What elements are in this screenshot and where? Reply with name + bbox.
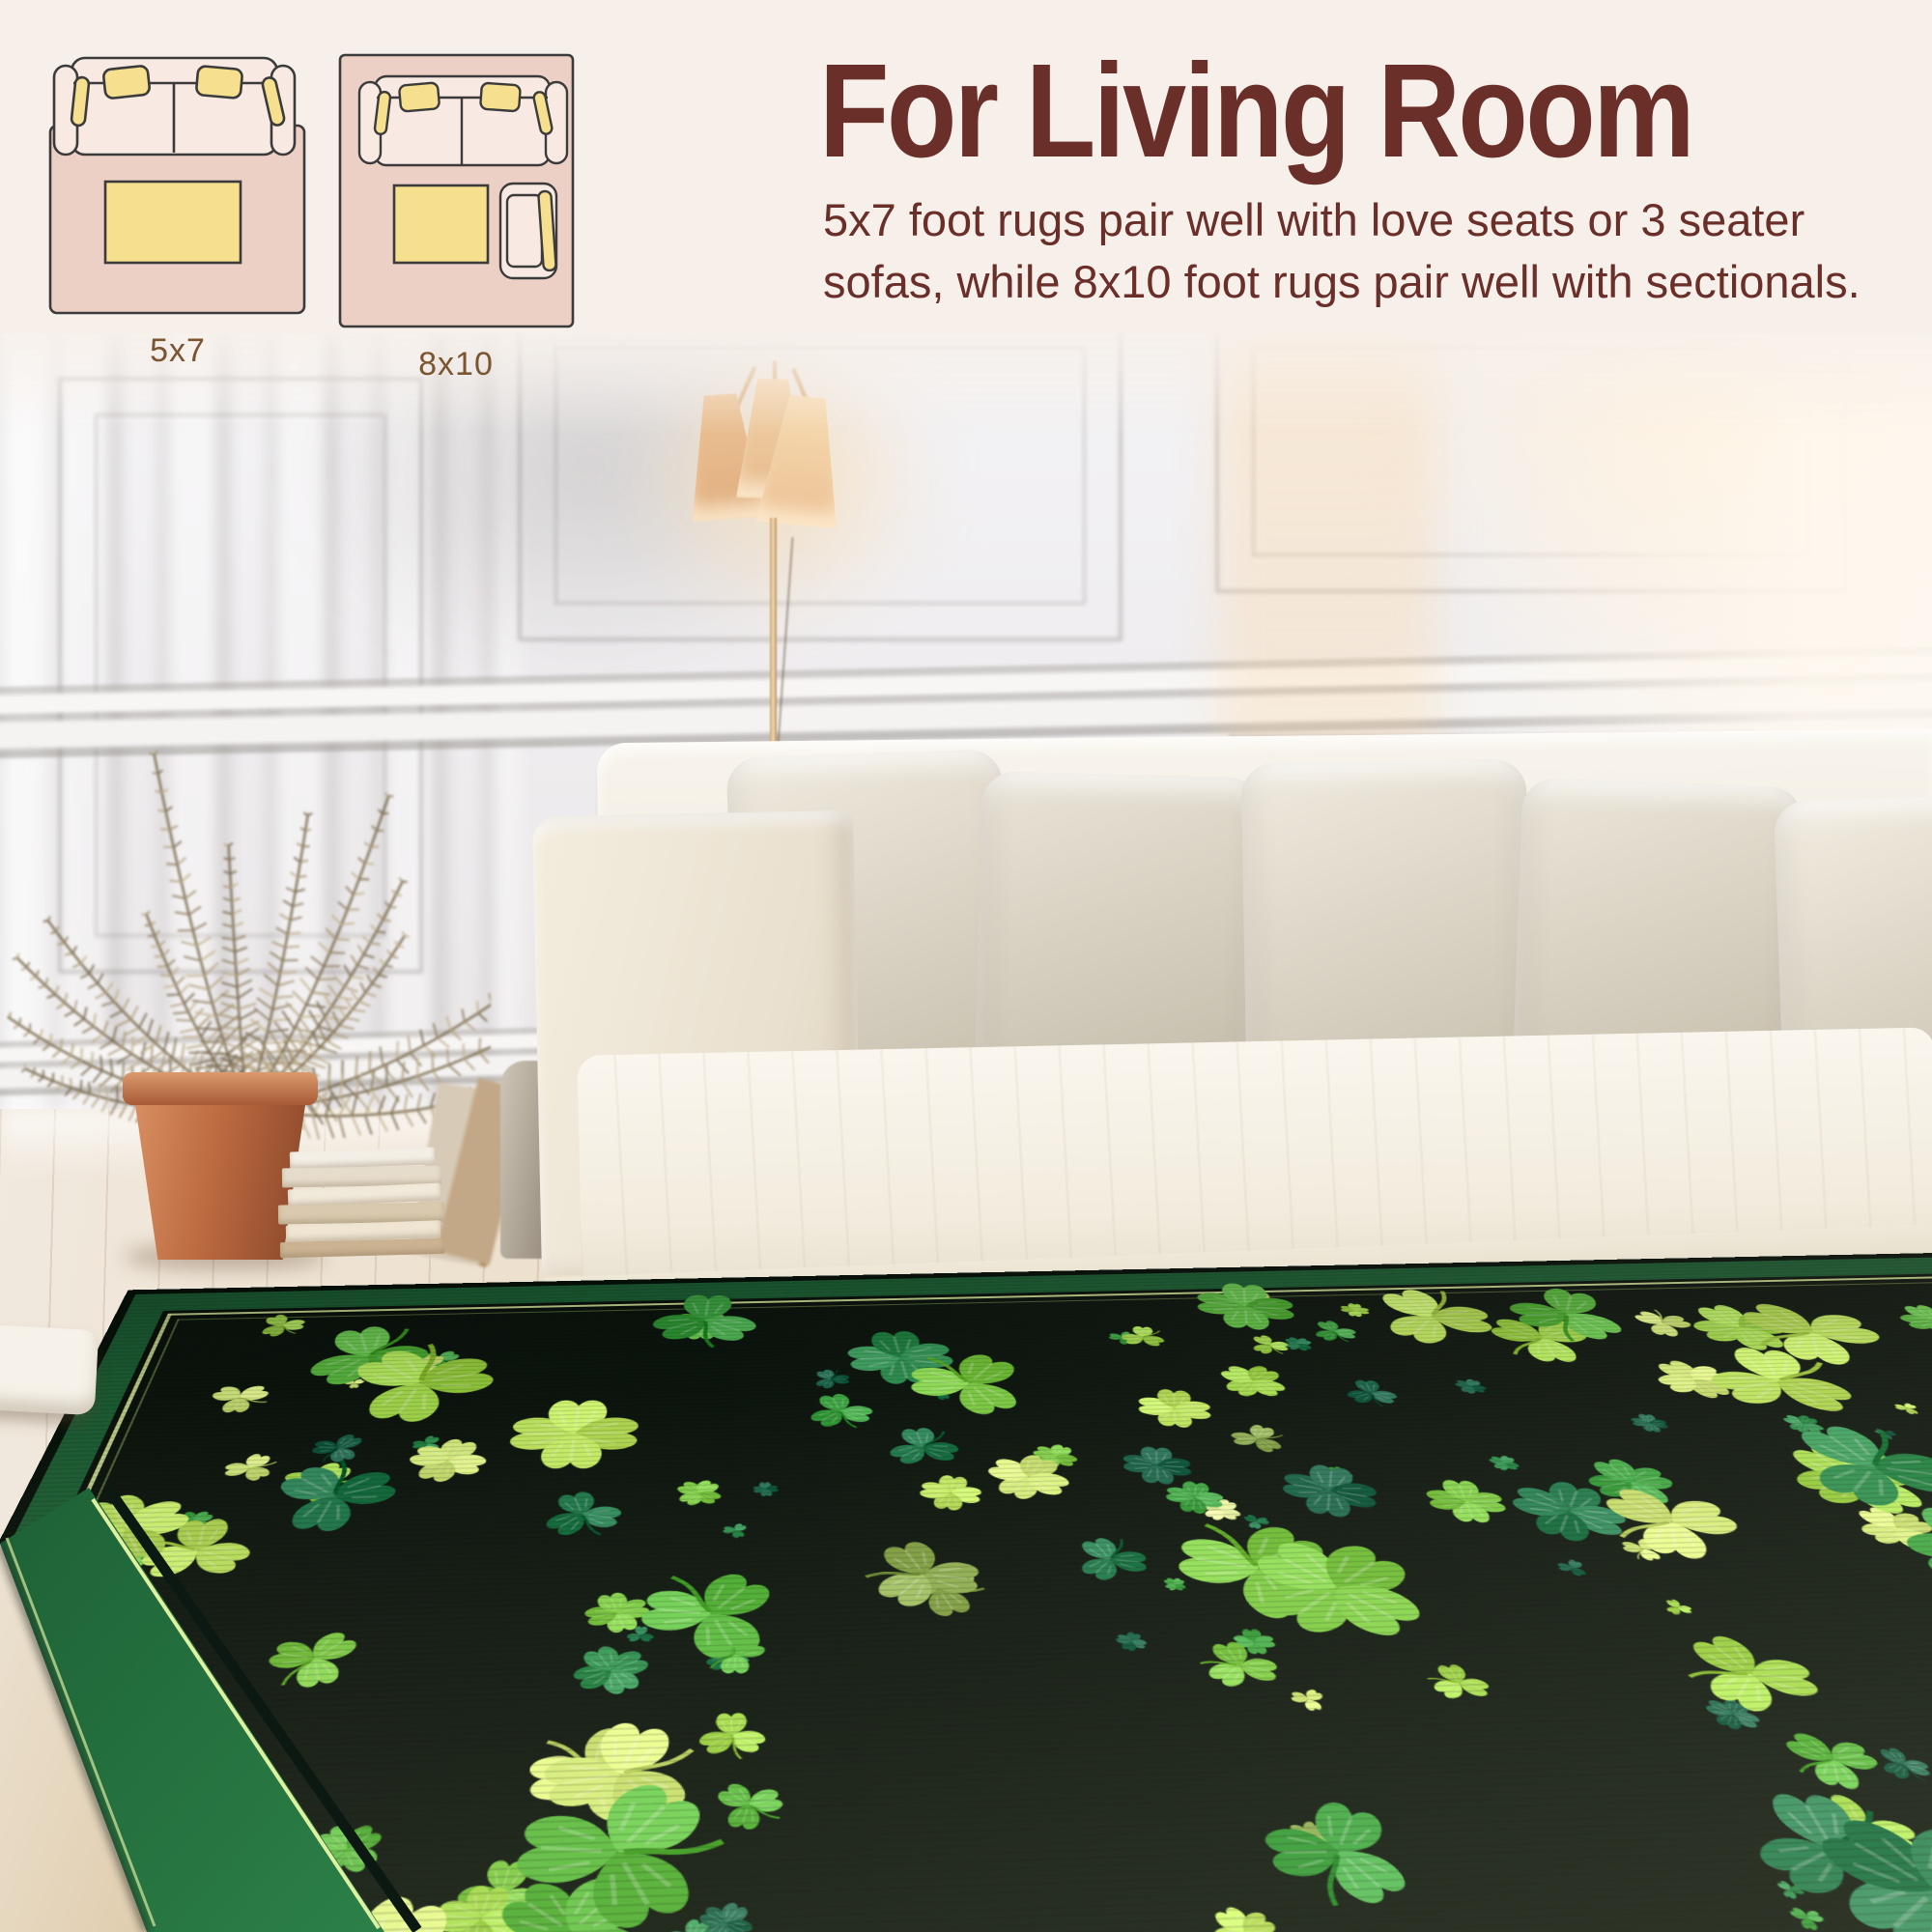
diagram-label-8x10: 8x10 [359,346,553,384]
rug-size-diagram-5x7 [44,56,311,319]
shamrock-rug [0,1225,1932,1932]
terracotta-pot-rim [123,1072,318,1105]
armchair-corner [0,1324,99,1415]
sofa-top-icon [359,76,567,165]
band-fade [0,319,1932,435]
product-infographic: 5x7 8x10 For Living Room 5x7 foot rugs p… [0,0,1932,1932]
diagram-label-5x7: 5x7 [81,332,274,370]
rug-surface [0,1245,1932,1932]
dried-palm-plant [8,537,491,1155]
page-description: 5x7 foot rugs pair well with love seats … [823,189,1900,313]
rug-size-diagram-8x10 [338,53,575,328]
sofa-top-icon [54,58,295,155]
coffee-table-icon [394,185,488,263]
rug-lighting [0,1245,1932,1932]
armchair-top-icon [500,184,556,278]
page-title: For Living Room [819,35,1766,188]
coffee-table-icon [105,182,241,263]
